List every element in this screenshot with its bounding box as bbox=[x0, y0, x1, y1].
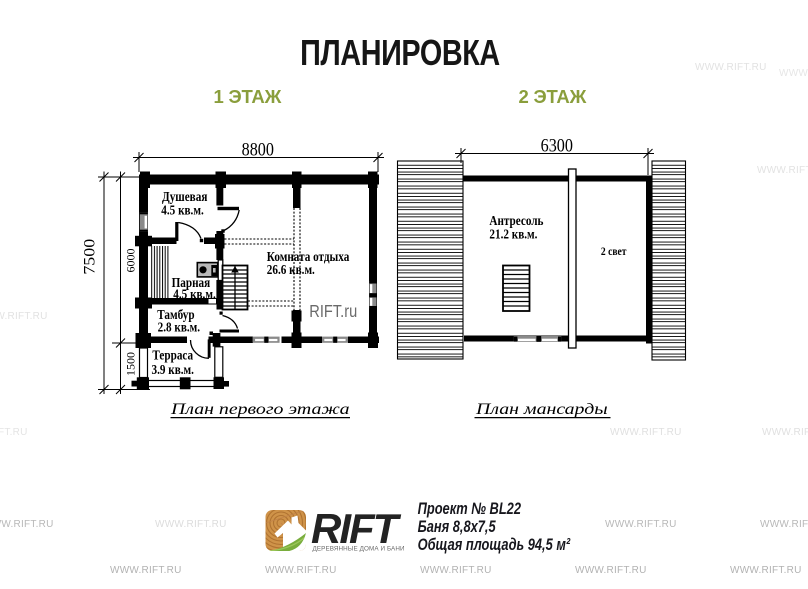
svg-text:Баня 8,8х7,5: Баня 8,8х7,5 bbox=[418, 518, 497, 536]
svg-text:2.8 кв.м.: 2.8 кв.м. bbox=[158, 320, 200, 335]
svg-text:6000: 6000 bbox=[124, 249, 138, 273]
svg-text:21.2 кв.м.: 21.2 кв.м. bbox=[489, 227, 537, 242]
svg-text:8800: 8800 bbox=[242, 138, 274, 160]
svg-text:4.5 кв.м.: 4.5 кв.м. bbox=[161, 202, 203, 217]
svg-text:Проект № BL22: Проект № BL22 bbox=[418, 500, 522, 518]
svg-text:Общая площадь 94,5 м²: Общая площадь 94,5 м² bbox=[418, 536, 571, 554]
svg-text:4.5 кв.м.: 4.5 кв.м. bbox=[173, 286, 215, 301]
svg-text:1500: 1500 bbox=[124, 352, 138, 376]
svg-text:ДЕРЕВЯННЫЕ ДОМА И БАНИ: ДЕРЕВЯННЫЕ ДОМА И БАНИ bbox=[313, 546, 405, 553]
svg-text:3.9 кв.м.: 3.9 кв.м. bbox=[152, 362, 194, 377]
svg-text:2 свет: 2 свет bbox=[601, 245, 627, 258]
svg-text:План первого этажа: План первого этажа bbox=[170, 400, 350, 418]
svg-text:26.6 кв.м.: 26.6 кв.м. bbox=[267, 262, 315, 277]
svg-text:6300: 6300 bbox=[541, 134, 573, 156]
svg-text:План мансарды: План мансарды bbox=[475, 400, 608, 418]
svg-text:Терраса: Терраса bbox=[152, 348, 193, 363]
svg-text:7500: 7500 bbox=[81, 239, 98, 275]
svg-text:RIFT.ru: RIFT.ru bbox=[309, 303, 357, 321]
